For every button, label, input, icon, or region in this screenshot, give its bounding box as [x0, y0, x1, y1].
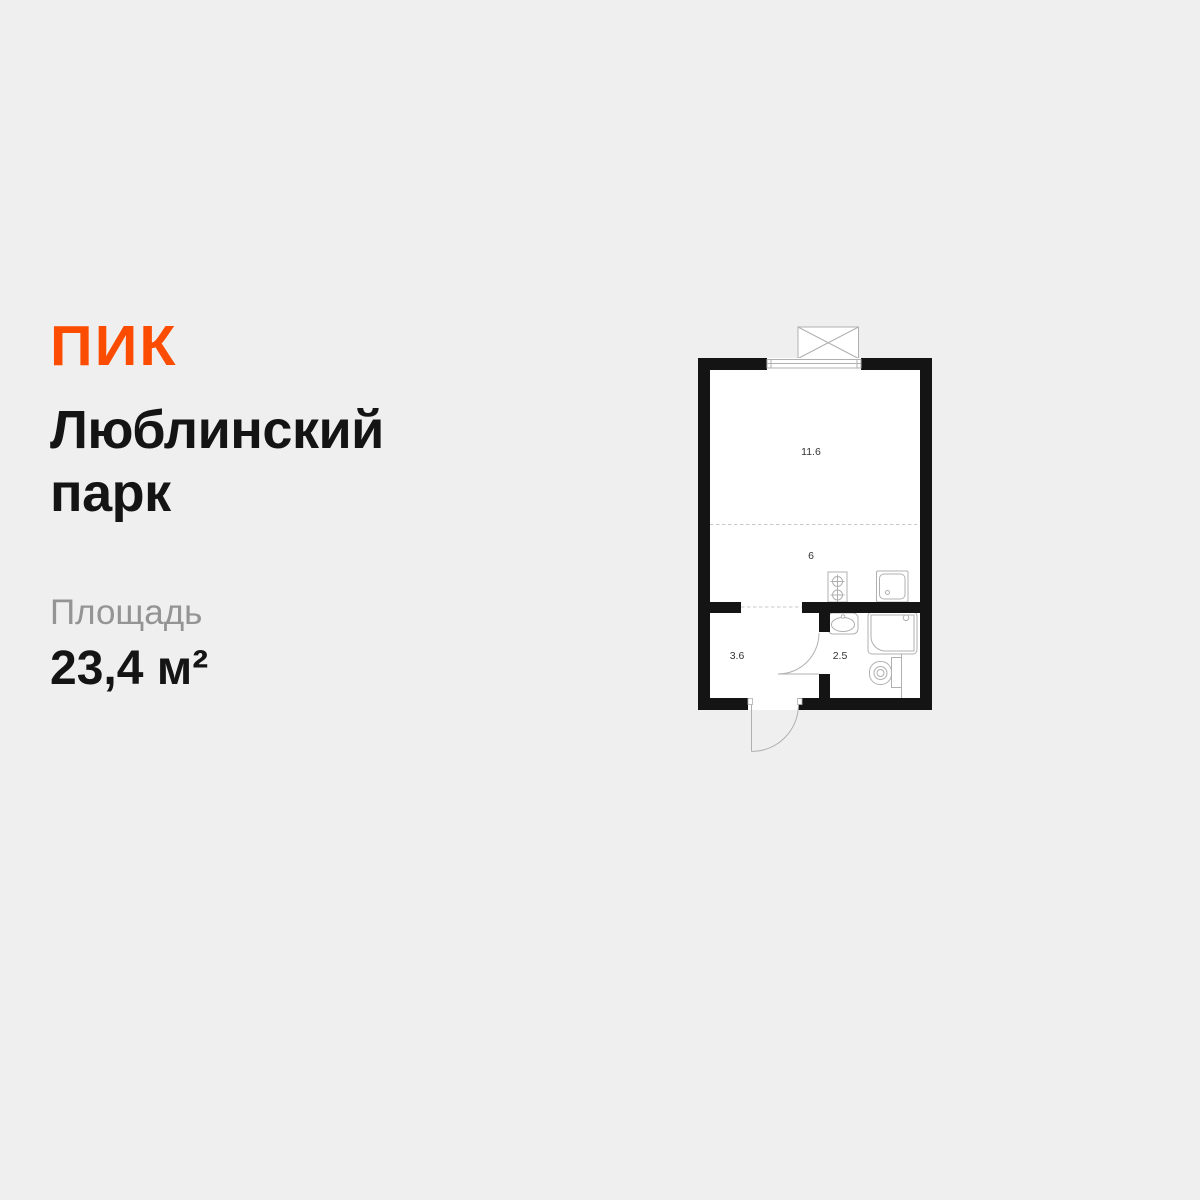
room-label-living: 11.6: [801, 446, 821, 458]
wall-bottom-right-segment: [798, 698, 932, 710]
wall-kitchen-bath-segment: [802, 602, 921, 613]
room-label-kitchen: 6: [808, 550, 814, 562]
pik-logo: ПИК: [50, 318, 549, 375]
floor-plan-svg: 11.6 6 3.6 2.5: [688, 320, 944, 760]
balcony: [798, 327, 859, 359]
kitchen-sink: [877, 571, 909, 602]
wall-right: [920, 358, 932, 710]
wall-bath-upper-segment: [819, 613, 830, 632]
entrance-door-arc: [752, 705, 799, 752]
entrance-door: [752, 705, 799, 752]
window: [767, 360, 861, 369]
wall-bottom-left-segment: [698, 698, 748, 710]
info-panel: ПИК Люблинский парк Площадь 23,4 м²: [50, 318, 530, 696]
room-label-hallway: 3.6: [730, 650, 745, 662]
room-label-bathroom: 2.5: [833, 650, 848, 662]
wall-top-right-segment: [861, 358, 932, 370]
area-value: 23,4 м²: [50, 641, 530, 696]
shower: [868, 612, 917, 654]
entrance-jamb-right: [798, 699, 803, 705]
wall-hall-left-segment: [709, 602, 741, 613]
wall-bath-lower-segment: [819, 674, 830, 698]
stove: [828, 572, 847, 602]
washbasin: [828, 613, 858, 634]
project-title: Люблинский парк: [50, 399, 480, 525]
wall-left: [698, 358, 710, 710]
area-label: Площадь: [50, 593, 530, 633]
floor-plan: 11.6 6 3.6 2.5: [688, 320, 944, 760]
wall-top-left-segment: [698, 358, 767, 370]
entrance-jamb-left: [748, 699, 753, 705]
